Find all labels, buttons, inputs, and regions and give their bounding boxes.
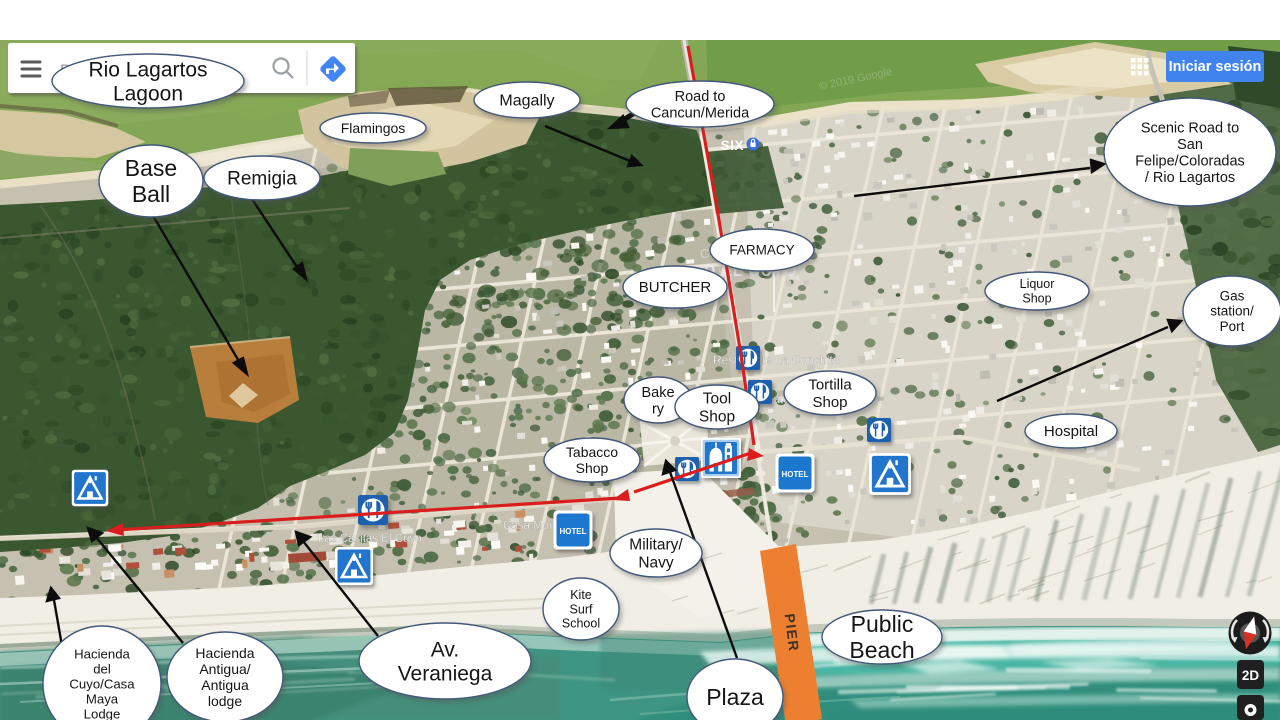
svg-text:Scenic Road to: Scenic Road to bbox=[1141, 120, 1239, 136]
svg-text:Lagoon: Lagoon bbox=[113, 82, 183, 105]
svg-text:Base: Base bbox=[125, 155, 177, 181]
svg-text:Rio Lagartos: Rio Lagartos bbox=[88, 58, 207, 81]
svg-text:Hospital: Hospital bbox=[1044, 423, 1098, 440]
svg-text:Navy: Navy bbox=[638, 554, 674, 571]
svg-text:Liquor: Liquor bbox=[1020, 277, 1055, 291]
svg-text:SIX: SIX bbox=[721, 138, 744, 153]
svg-text:Ball: Ball bbox=[132, 181, 170, 207]
svg-text:Tool: Tool bbox=[703, 391, 731, 408]
svg-text:Shop: Shop bbox=[699, 408, 735, 425]
svg-text:Hacienda: Hacienda bbox=[195, 645, 254, 661]
svg-text:Felipe/Coloradas: Felipe/Coloradas bbox=[1135, 153, 1245, 169]
svg-text:Flamingos: Flamingos bbox=[341, 120, 406, 136]
svg-text:Cancun/Merida: Cancun/Merida bbox=[651, 105, 750, 121]
svg-text:Plaza: Plaza bbox=[706, 684, 764, 710]
svg-text:Beach: Beach bbox=[849, 637, 914, 663]
svg-text:C: C bbox=[700, 246, 709, 261]
svg-text:Shop: Shop bbox=[576, 460, 609, 476]
svg-text:Las Casitas El Cuyo: Las Casitas El Cuyo bbox=[318, 533, 422, 545]
svg-text:ry: ry bbox=[652, 401, 665, 417]
svg-text:Tabacco: Tabacco bbox=[566, 444, 618, 460]
svg-text:Remigia: Remigia bbox=[227, 169, 297, 190]
svg-text:2D: 2D bbox=[1242, 668, 1260, 683]
svg-text:Hacienda: Hacienda bbox=[74, 647, 130, 662]
svg-text:te La Conchita: te La Conchita bbox=[762, 353, 840, 367]
svg-text:Port: Port bbox=[1220, 319, 1245, 334]
svg-text:Shop: Shop bbox=[812, 394, 847, 411]
svg-text:lodge: lodge bbox=[208, 693, 242, 709]
svg-text:Casa Morp: Casa Morp bbox=[503, 520, 559, 532]
svg-text:Veraniega: Veraniega bbox=[398, 662, 493, 685]
svg-text:San: San bbox=[1177, 137, 1203, 153]
svg-text:Kite: Kite bbox=[570, 588, 592, 602]
svg-text:Maya: Maya bbox=[86, 692, 119, 707]
svg-text:Antigua: Antigua bbox=[201, 677, 249, 693]
svg-text:BUTCHER: BUTCHER bbox=[639, 279, 712, 296]
svg-text:Public: Public bbox=[851, 611, 914, 637]
svg-text:Cuyo/Casa: Cuyo/Casa bbox=[69, 677, 135, 692]
svg-text:del: del bbox=[93, 662, 111, 677]
svg-text:Road to: Road to bbox=[675, 89, 726, 105]
svg-text:Rest: Rest bbox=[713, 353, 738, 367]
svg-text:Shop: Shop bbox=[1022, 292, 1051, 306]
svg-text:Gas: Gas bbox=[1220, 288, 1245, 303]
svg-text:Tortilla: Tortilla bbox=[808, 377, 852, 394]
svg-text:station/: station/ bbox=[1210, 304, 1254, 319]
svg-text:/ Rio Lagartos: / Rio Lagartos bbox=[1145, 170, 1235, 186]
svg-text:Antigua/: Antigua/ bbox=[199, 661, 250, 677]
svg-text:Av.: Av. bbox=[431, 638, 459, 661]
svg-text:Magally: Magally bbox=[499, 93, 554, 110]
svg-text:Iniciar sesión: Iniciar sesión bbox=[1169, 59, 1262, 75]
svg-text:Military/: Military/ bbox=[629, 537, 683, 554]
svg-text:School: School bbox=[562, 617, 600, 631]
svg-text:Surf: Surf bbox=[570, 602, 593, 616]
svg-text:FARMACY: FARMACY bbox=[729, 243, 794, 258]
svg-text:Lodge: Lodge bbox=[84, 707, 121, 720]
svg-text:Bake: Bake bbox=[641, 385, 674, 401]
